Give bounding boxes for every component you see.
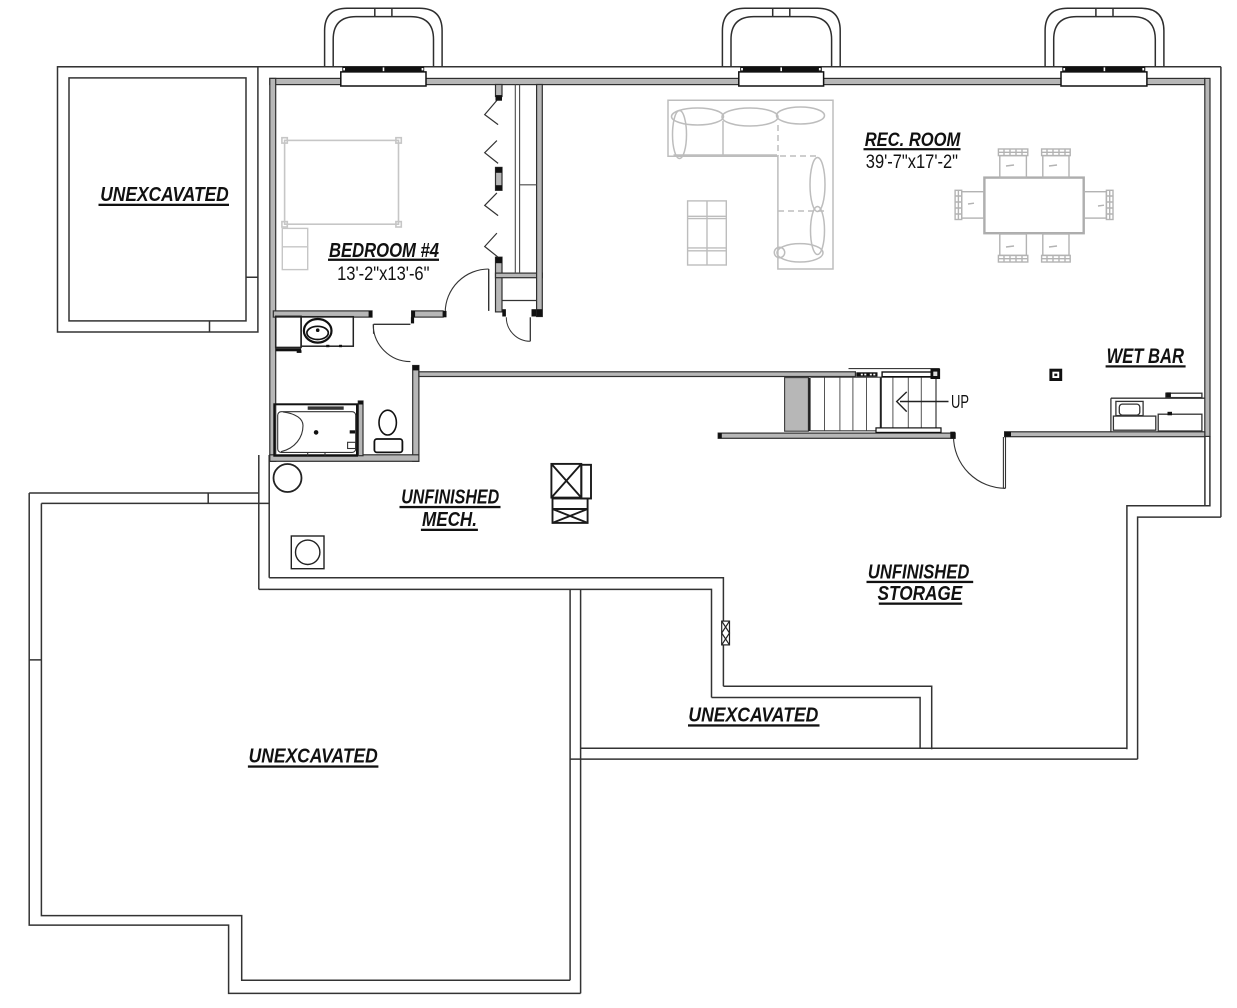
svg-text:WET BAR: WET BAR [1107,345,1185,368]
svg-text:REC. ROOM: REC. ROOM [865,130,962,151]
svg-text:STORAGE: STORAGE [878,583,963,605]
svg-text:UNEXCAVATED: UNEXCAVATED [249,746,378,768]
svg-text:UNFINISHED: UNFINISHED [401,486,499,508]
svg-text:UNEXCAVATED: UNEXCAVATED [688,705,818,727]
svg-text:UNEXCAVATED: UNEXCAVATED [100,184,229,206]
svg-text:UP: UP [951,391,969,412]
svg-text:MECH.: MECH. [422,509,477,531]
svg-text:13'-2"x13'-6": 13'-2"x13'-6" [337,264,429,285]
svg-text:UNFINISHED: UNFINISHED [868,562,970,584]
svg-text:39'-7"x17'-2": 39'-7"x17'-2" [866,152,958,173]
